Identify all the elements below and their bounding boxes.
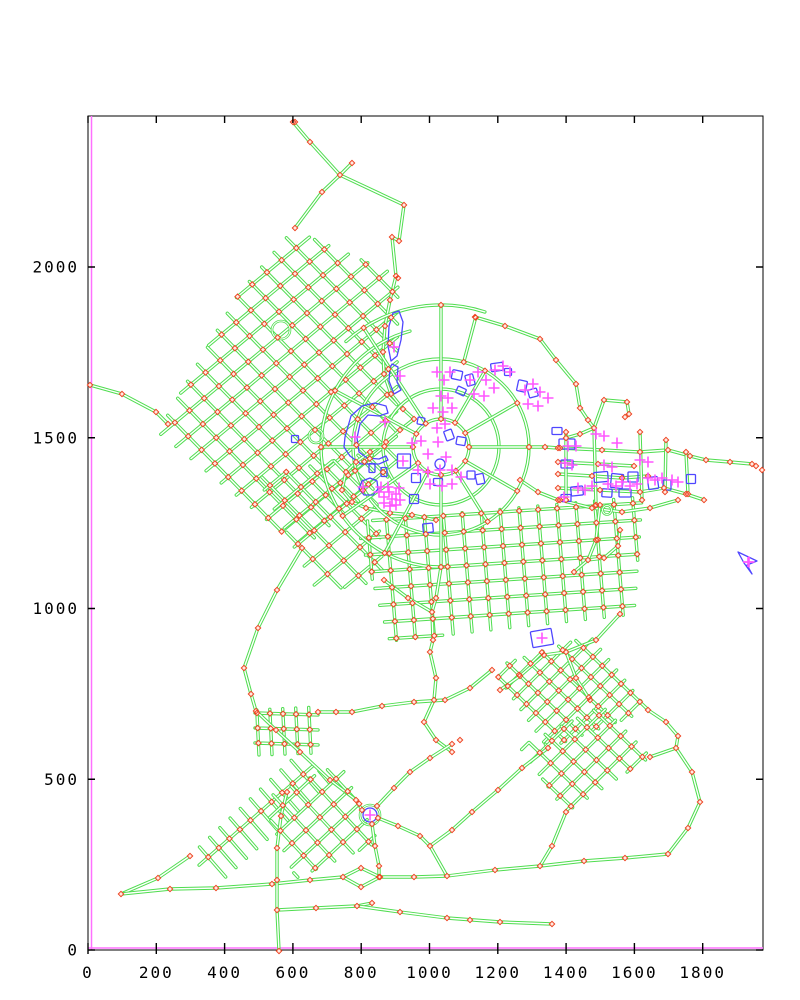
- road: [540, 339, 594, 428]
- y-tick-label: 2000: [32, 258, 79, 277]
- road-core: [244, 548, 302, 668]
- network-map-svg: 0200400600800100012001400160018000500100…: [0, 0, 800, 1000]
- plot-window: 0200400600800100012001400160018000500100…: [0, 0, 800, 1000]
- road-core: [293, 122, 340, 175]
- road: [676, 748, 700, 802]
- road: [340, 175, 404, 241]
- x-tick-label: 0: [82, 963, 94, 982]
- y-tick-label: 1000: [32, 599, 79, 618]
- y-tick-label: 0: [67, 941, 79, 960]
- road-core: [90, 385, 168, 424]
- x-tick-label: 1400: [543, 963, 590, 982]
- radial-road-core: [465, 403, 517, 433]
- building-outline: [451, 370, 463, 381]
- building-outline: [467, 471, 475, 479]
- road-core: [340, 175, 404, 241]
- x-tick-label: 1600: [611, 963, 658, 982]
- road: [445, 670, 492, 700]
- road-core: [340, 163, 352, 175]
- road-core: [594, 400, 629, 428]
- x-tick-label: 1200: [475, 963, 522, 982]
- x-tick-label: 200: [139, 963, 174, 982]
- road: [668, 802, 700, 854]
- radial-road-core: [465, 461, 517, 491]
- road-core: [650, 748, 676, 757]
- junction-node-diamonds: [87, 119, 764, 953]
- road-core: [244, 668, 256, 711]
- road-core: [377, 744, 452, 806]
- x-tick-label: 800: [344, 963, 379, 982]
- road: [648, 710, 678, 748]
- road: [244, 548, 302, 668]
- radial-road-core: [464, 318, 476, 362]
- building-outline: [412, 474, 421, 483]
- building-outline: [456, 436, 466, 445]
- road: [90, 385, 168, 424]
- x-tick-label: 1800: [679, 963, 726, 982]
- x-tick-label: 1000: [406, 963, 453, 982]
- road-core: [256, 711, 300, 752]
- y-tick-label: 1500: [32, 428, 79, 447]
- road: [377, 744, 452, 806]
- building-outline: [552, 428, 562, 435]
- x-tick-label: 600: [275, 963, 310, 982]
- road: [378, 818, 430, 846]
- building-outline: [475, 473, 485, 484]
- road-core: [665, 440, 666, 492]
- y-tick-label: 500: [44, 770, 79, 789]
- road: [424, 652, 436, 722]
- road-core: [430, 846, 447, 876]
- building-outline: [444, 429, 455, 441]
- street-grid-southwest-grid-core: [270, 770, 375, 877]
- x-tick-label: 400: [207, 963, 242, 982]
